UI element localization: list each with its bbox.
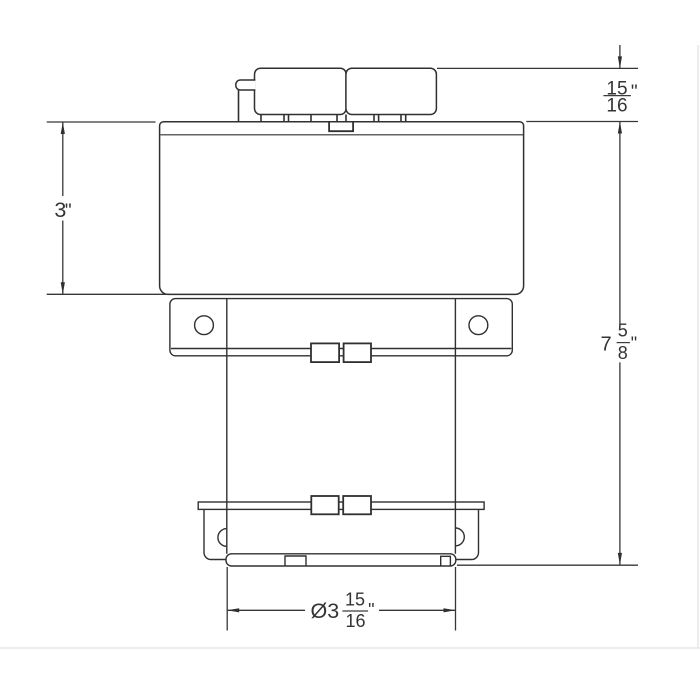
svg-text:Ø3: Ø3: [311, 599, 340, 623]
svg-text:16: 16: [345, 611, 365, 631]
svg-text:": ": [65, 201, 72, 222]
svg-text:5: 5: [618, 321, 628, 341]
svg-text:": ": [631, 334, 637, 354]
svg-text:16: 16: [606, 96, 627, 117]
svg-text:": ": [368, 600, 374, 620]
svg-text:15: 15: [345, 589, 365, 609]
svg-text:": ": [631, 82, 638, 103]
svg-text:8: 8: [618, 343, 628, 363]
svg-text:7: 7: [600, 333, 611, 355]
